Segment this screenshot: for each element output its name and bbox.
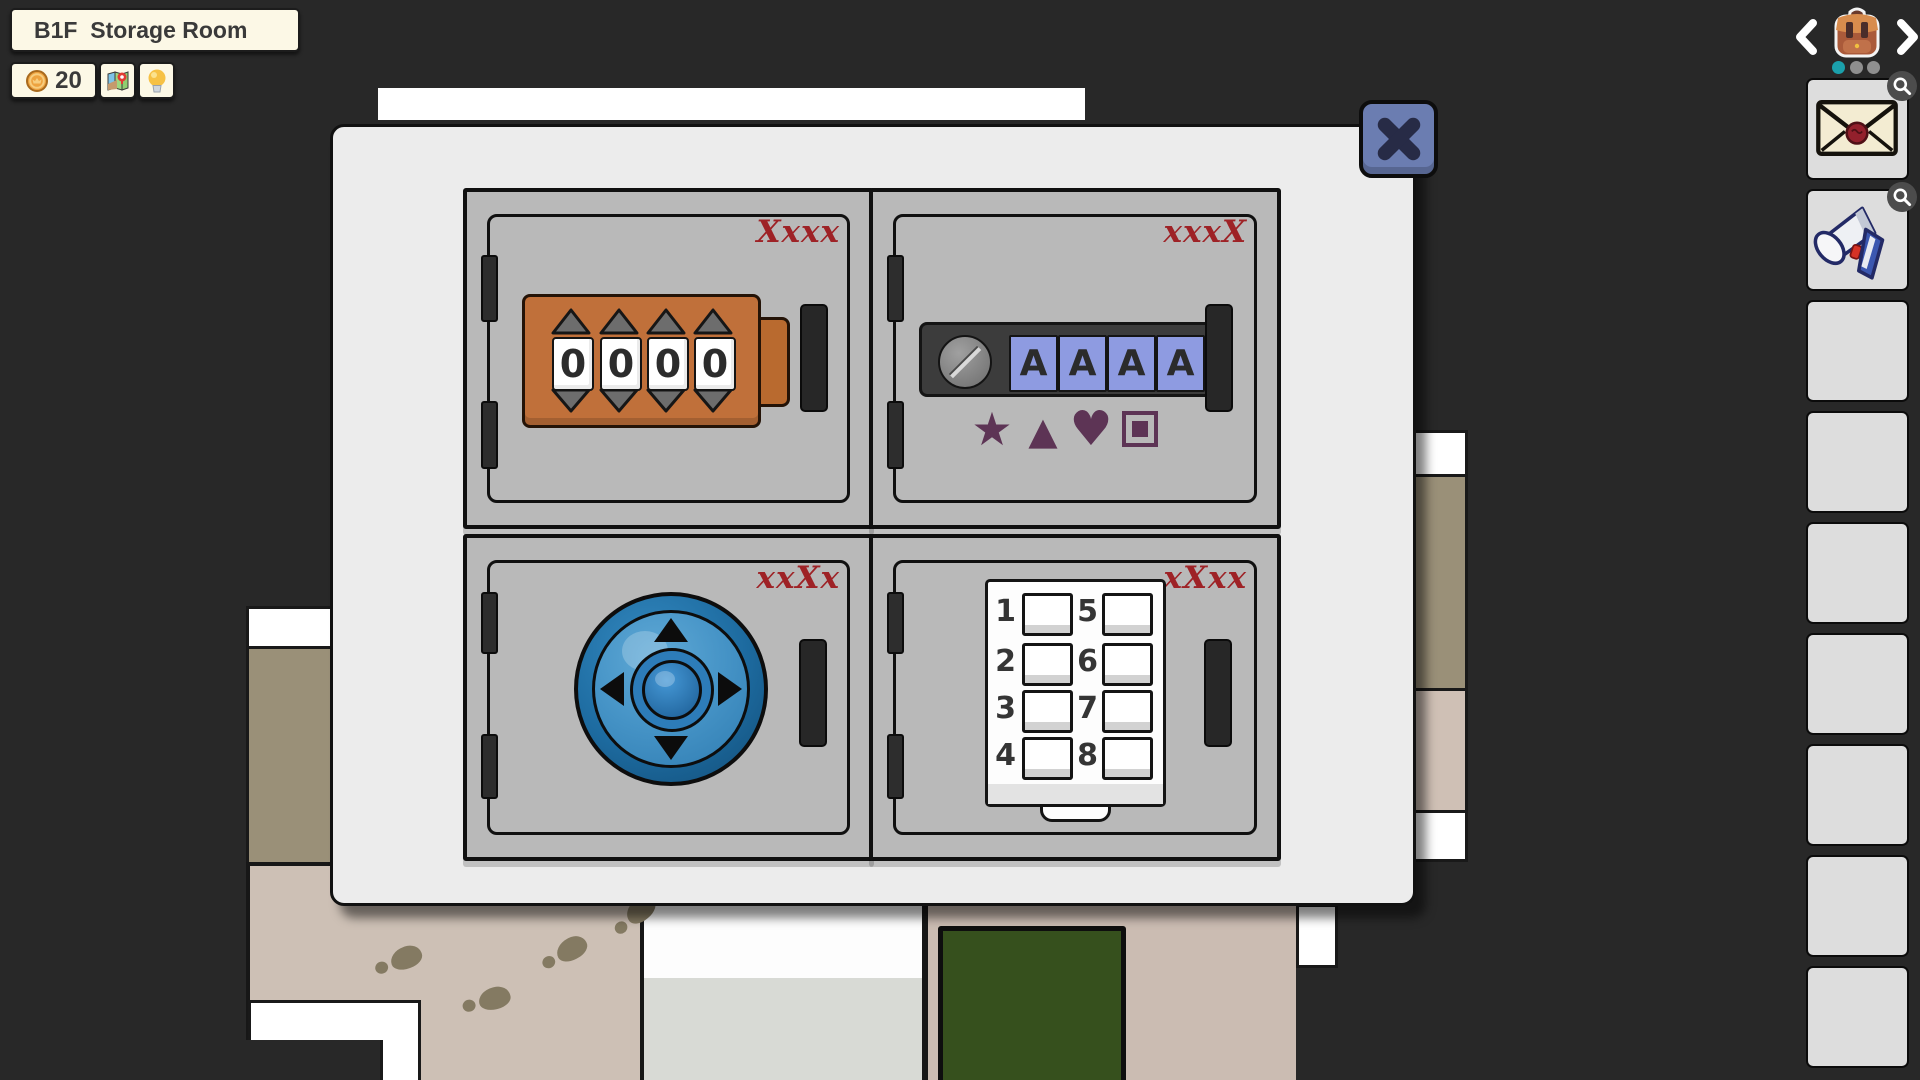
key-label: 5 [1070, 593, 1098, 630]
sealed-envelope-icon [1814, 95, 1900, 161]
page-dot-active [1832, 61, 1845, 74]
dial-digit: 0 [600, 337, 642, 391]
key-label: 3 [988, 690, 1016, 727]
page-dot [1850, 61, 1863, 74]
key-label: 7 [1070, 690, 1098, 727]
room-title-text: B1F Storage Room [34, 17, 247, 44]
key-label: 2 [988, 643, 1016, 680]
dial-down-arrow-icon[interactable] [553, 390, 589, 411]
symbol-heart: ♥ [1069, 405, 1112, 453]
hinge-icon [481, 401, 498, 469]
inventory-prev-button[interactable] [1794, 18, 1818, 56]
room-bl-dark-patch [246, 1040, 380, 1080]
letter-button-lock: A A A A [919, 322, 1213, 397]
dpad-up-icon[interactable] [654, 618, 688, 642]
dial-down-arrow-icon[interactable] [648, 390, 684, 411]
locker-bottom-right: xXxx 1 2 3 4 5 6 7 8 [869, 534, 1281, 861]
inventory-slot-empty[interactable] [1806, 966, 1909, 1068]
dial-up-arrow-icon[interactable] [553, 310, 589, 333]
keypad-base-strip [988, 784, 1163, 804]
dial-up-arrow-icon[interactable] [601, 310, 637, 333]
code-hint-label: xxxX [1164, 214, 1248, 250]
coin-counter: 20 [10, 62, 97, 99]
dial-digit: 0 [694, 337, 736, 391]
keypad-button[interactable] [1022, 690, 1073, 733]
locker-top-left: Xxxx 0 0 0 [463, 188, 874, 529]
letter-button[interactable]: A [1058, 335, 1107, 392]
dpad-down-icon[interactable] [654, 736, 688, 760]
locker-handle[interactable] [1204, 639, 1232, 747]
locker-top-right: xxxX A A A A ★ ▲ ♥ [869, 188, 1281, 529]
page-dot [1867, 61, 1880, 74]
number-keypad-lock: 1 2 3 4 5 6 7 8 [985, 579, 1166, 807]
dial-down-arrow-icon[interactable] [601, 390, 637, 411]
key-label: 6 [1070, 643, 1098, 680]
room-title: B1F Storage Room [10, 8, 300, 52]
direction-pad-lock [574, 592, 768, 786]
symbol-triangle: ▲ [1028, 412, 1057, 450]
x-icon [1368, 108, 1430, 170]
inventory-slot-empty[interactable] [1806, 411, 1909, 513]
room-door-left-khaki [246, 646, 336, 870]
room-right-white-2 [1412, 810, 1468, 862]
keypad-button[interactable] [1102, 643, 1153, 686]
backpack-button[interactable] [1826, 2, 1888, 64]
room-right-khaki [1412, 474, 1468, 694]
inventory-next-button[interactable] [1896, 18, 1920, 56]
dpad-right-icon[interactable] [718, 672, 742, 706]
room-floor-mid-gray [644, 978, 922, 1080]
hinge-icon [887, 592, 904, 654]
hint-button[interactable] [138, 62, 175, 99]
hinge-icon [481, 592, 498, 654]
chevron-left-icon [1794, 18, 1818, 56]
hinge-icon [887, 401, 904, 469]
hinge-icon [887, 255, 904, 322]
dpad-center-ring [630, 648, 714, 732]
code-hint-label: xXxx [1164, 560, 1248, 596]
dial-up-arrow-icon[interactable] [648, 310, 684, 333]
inventory-slot-empty[interactable] [1806, 633, 1909, 735]
knob-slot [949, 346, 982, 379]
inventory-slot-empty[interactable] [1806, 855, 1909, 957]
keypad-button[interactable] [1022, 593, 1073, 636]
key-label: 8 [1070, 737, 1098, 774]
game-stage: B1F Storage Room 20 [0, 0, 1920, 1080]
code-hint-label: Xxxx [757, 214, 841, 250]
map-icon [106, 69, 130, 92]
number-dial-lock: 0 0 0 0 [522, 294, 761, 428]
dial-digit: 0 [647, 337, 689, 391]
green-rug [938, 926, 1126, 1080]
lock-knob[interactable] [938, 335, 992, 389]
coin-icon [25, 69, 49, 93]
dial-down-arrow-icon[interactable] [695, 390, 731, 411]
letter-button[interactable]: A [1156, 335, 1205, 392]
dial-up-arrow-icon[interactable] [695, 310, 731, 333]
hinge-icon [887, 734, 904, 799]
inventory-slot-empty[interactable] [1806, 744, 1909, 846]
letter-button[interactable]: A [1107, 335, 1156, 392]
code-hint-label: xxXx [757, 560, 841, 596]
room-wall-mid-white [644, 902, 922, 978]
key-label: 1 [988, 593, 1016, 630]
backpack-icon [1826, 2, 1888, 64]
magnify-badge[interactable] [1887, 71, 1917, 101]
keypad-button[interactable] [1022, 737, 1073, 780]
symbol-square [1122, 411, 1158, 447]
locker-handle[interactable] [800, 304, 828, 412]
keypad-button[interactable] [1102, 690, 1153, 733]
dpad-left-icon[interactable] [600, 672, 624, 706]
room-wall-top [378, 88, 1085, 120]
magnify-badge[interactable] [1887, 182, 1917, 212]
key-label: 4 [988, 737, 1016, 774]
inventory-slot-empty[interactable] [1806, 300, 1909, 402]
dial-digit: 0 [552, 337, 594, 391]
close-button[interactable] [1359, 100, 1438, 178]
keypad-button[interactable] [1022, 643, 1073, 686]
dpad-center-button[interactable] [642, 660, 702, 720]
locker-handle[interactable] [1205, 304, 1233, 412]
lightbulb-icon [145, 68, 169, 94]
heat-gun-icon [1813, 196, 1901, 284]
room-right-pink [1412, 688, 1468, 816]
magnifier-icon [1891, 186, 1913, 208]
magnifier-icon [1891, 75, 1913, 97]
locker-bottom-left: xxXx [463, 534, 874, 861]
inventory-slot-envelope[interactable] [1806, 78, 1909, 180]
inventory-slot-empty[interactable] [1806, 522, 1909, 624]
inventory-slot-heat-gun[interactable] [1806, 189, 1909, 291]
room-bl-white-col [380, 1040, 421, 1080]
hinge-icon [481, 734, 498, 799]
keypad-button[interactable] [1102, 593, 1153, 636]
locker-puzzle-modal: Xxxx 0 0 0 [330, 124, 1416, 906]
letter-button[interactable]: A [1009, 335, 1058, 392]
room-wall-white-sq [1296, 904, 1338, 968]
coin-count: 20 [55, 67, 82, 95]
hinge-icon [481, 255, 498, 322]
room-right-white-1 [1412, 430, 1468, 480]
locker-handle[interactable] [799, 639, 827, 747]
symbol-star: ★ [971, 406, 1012, 452]
map-button[interactable] [99, 62, 136, 99]
keypad-button[interactable] [1102, 737, 1153, 780]
chevron-right-icon [1896, 18, 1920, 56]
